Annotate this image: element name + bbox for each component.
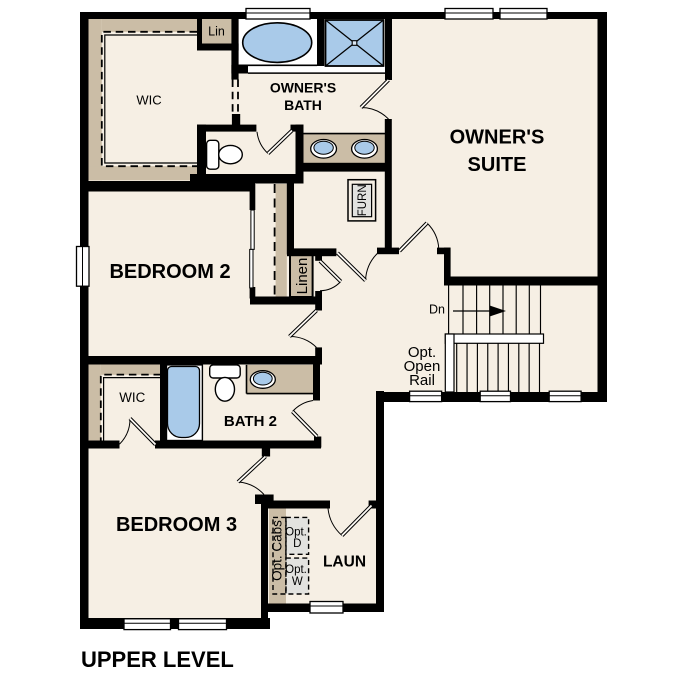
svg-text:BEDROOM 2: BEDROOM 2 [109,261,230,283]
svg-text:Dn: Dn [429,303,445,317]
svg-text:WIC: WIC [119,390,145,405]
svg-text:BEDROOM 3: BEDROOM 3 [116,514,237,536]
svg-text:UPPER LEVEL: UPPER LEVEL [81,647,234,672]
svg-text:Lin: Lin [208,25,225,39]
svg-text:OWNER'S: OWNER'S [270,80,336,96]
svg-text:D: D [293,538,301,550]
svg-text:Opt. Cabs: Opt. Cabs [270,520,285,581]
svg-text:WIC: WIC [136,93,161,108]
svg-text:FURN: FURN [357,184,369,216]
svg-text:Rail: Rail [409,372,435,389]
svg-text:BATH 2: BATH 2 [224,413,277,430]
svg-text:LAUN: LAUN [323,553,366,570]
svg-text:SUITE: SUITE [468,154,527,176]
svg-text:Opt.: Opt. [285,527,307,539]
svg-text:Linen: Linen [294,258,311,295]
svg-text:Opt.: Opt. [285,564,307,576]
svg-text:OWNER'S: OWNER'S [450,127,545,149]
svg-text:W: W [292,576,303,588]
svg-text:BATH: BATH [284,97,322,113]
